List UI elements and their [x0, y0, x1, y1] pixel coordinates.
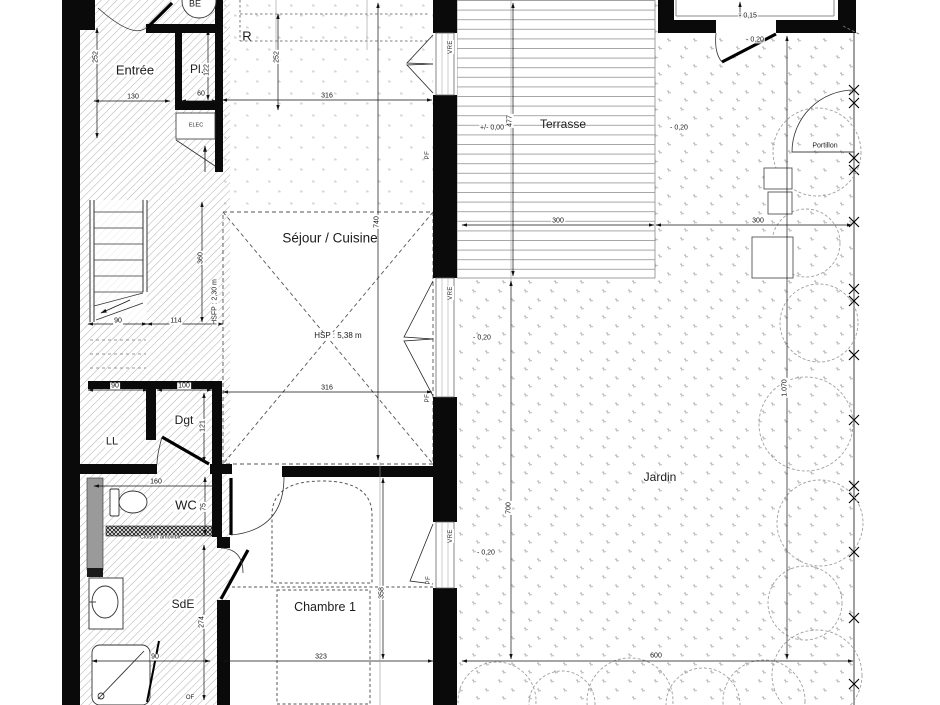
dim-300-terrasse: 300: [551, 218, 565, 225]
level-minus15: - 0,15: [738, 13, 758, 20]
annotation-hsp: HSP : 5,38 m: [313, 332, 362, 340]
window-label-vre-chambre: VRE: [448, 529, 454, 543]
dim-700: 700: [506, 501, 513, 515]
room-label-entree: Entrée: [114, 64, 156, 77]
floor-plan-canvas: Entrée Pl. R Séjour / Cuisine Dgt LL WC …: [0, 0, 940, 705]
room-label-dgt: Dgt: [173, 414, 196, 426]
dim-90-pl: 90: [110, 383, 120, 390]
window-label-pf-sejour: PF: [425, 394, 431, 403]
dim-90-stairs: 90: [113, 318, 123, 325]
annotation-hsfp: HSFP : 2,30 m: [212, 279, 219, 325]
level-minus20-annex: - 0,20: [745, 37, 765, 44]
level-minus20-terrasse: - 0,20: [669, 125, 689, 132]
window-label-vre-sejour: VRE: [448, 286, 454, 300]
room-label-sejour: Séjour / Cuisine: [282, 231, 377, 245]
dim-252-r: 252: [274, 50, 281, 64]
outdoor-label-jardin: Jardin: [644, 471, 677, 483]
room-label-sde: SdE: [170, 598, 197, 610]
dim-323: 323: [314, 654, 328, 661]
dim-100: 100: [177, 383, 191, 390]
annotation-cloison-amovible: Cloison amovible: [140, 535, 182, 541]
dim-740: 740: [374, 215, 381, 229]
dim-130: 130: [126, 94, 140, 101]
room-label-r: R: [242, 30, 251, 43]
dim-477: 477: [507, 114, 514, 128]
dim-358: 358: [379, 586, 386, 600]
dim-122: 122: [204, 63, 211, 77]
room-label-wc: WC: [173, 499, 199, 512]
dim-1070: 1.070: [782, 378, 789, 398]
window-label-pf-chambre: PF: [426, 576, 432, 585]
dim-316-sejour: 316: [320, 385, 334, 392]
dim-60: 60: [196, 91, 206, 98]
dim-316-top: 316: [320, 93, 334, 100]
annotation-elec: ELEC: [189, 123, 203, 129]
dim-121: 121: [200, 419, 207, 433]
room-label-ll: LL: [104, 437, 120, 448]
window-label-pf-r: PF: [425, 151, 431, 160]
level-minus20-jardin1: - 0,20: [472, 335, 492, 342]
dim-160: 160: [149, 479, 163, 486]
dim-252-entree: 252: [93, 50, 100, 64]
outdoor-label-terrasse: Terrasse: [540, 118, 586, 130]
floorplan-drawing: [0, 0, 940, 705]
dim-90-sde: 90: [150, 654, 160, 661]
dim-114: 114: [169, 318, 182, 325]
dim-600: 600: [649, 653, 663, 660]
dim-360: 360: [198, 251, 205, 265]
dim-75: 75: [201, 502, 208, 512]
level-minus20-jardin2: - 0,20: [476, 550, 496, 557]
level-zero: +/- 0,00: [479, 125, 505, 132]
window-label-vre-r: VRE: [448, 40, 454, 54]
dim-274: 274: [199, 615, 206, 629]
outdoor-label-portillon: Portillon: [812, 143, 837, 150]
annotation-of: OF: [186, 695, 194, 701]
dim-300-jardin: 300: [751, 218, 765, 225]
annotation-be: BE: [189, 0, 201, 9]
room-label-chambre1: Chambre 1: [294, 601, 356, 614]
